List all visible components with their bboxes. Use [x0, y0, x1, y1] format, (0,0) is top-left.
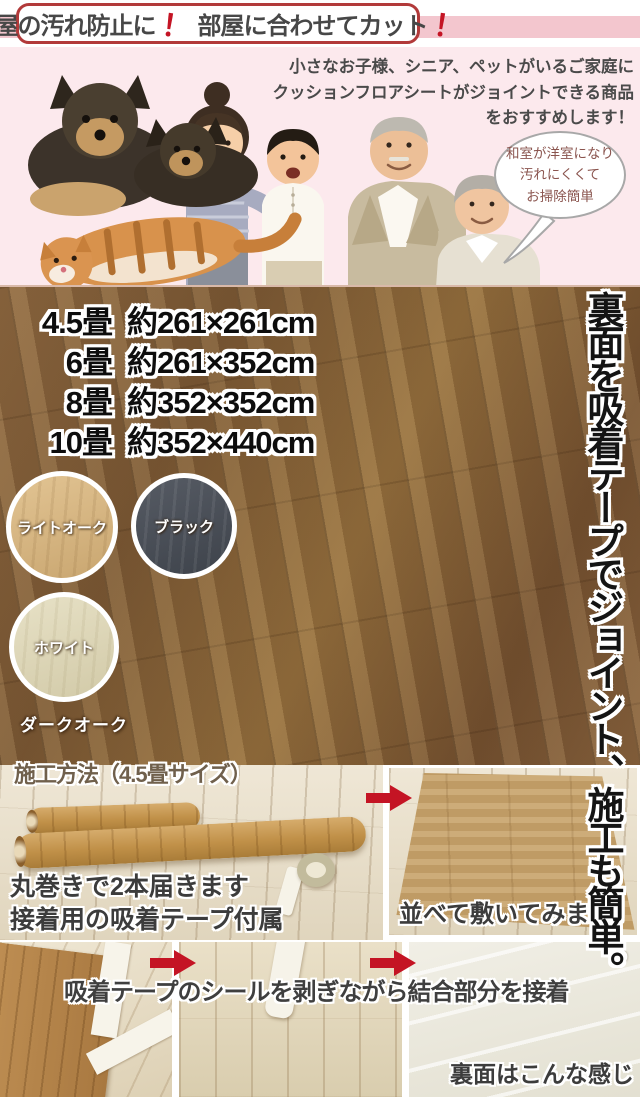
intro-description-line: をおすすめします！: [272, 106, 634, 132]
swatch-white-label: ホワイト: [34, 637, 94, 658]
speech-bubble: 和室が洋室になり 汚れにくくて お掃除簡単: [494, 131, 626, 219]
taping-steps-row: ◎ 裏面はこんな感じ 吸着テープのシールを剥ぎながら結合部分を接着: [0, 942, 640, 1097]
exclamation-icon: ！: [431, 0, 467, 47]
tape-corner-photo: [0, 942, 172, 1097]
size-dimension: 約352×352cm: [127, 377, 314, 422]
intro-description-line: 小さなお子様、シニア、ペットがいるご家庭に: [272, 55, 634, 81]
installation-title: 施工方法（4.5畳サイズ）: [14, 757, 251, 789]
header: 部屋の汚れ防止に ！ 部屋に合わせてカット ！: [0, 0, 640, 47]
swatch-dark-oak-label: ダークオーク: [20, 711, 128, 736]
step4-caption: 裏面はこんな感じ: [450, 1055, 634, 1089]
exclamation-icon: ！: [159, 0, 195, 47]
size-label: 6畳: [6, 337, 112, 382]
size-dimension: 約261×261cm: [127, 297, 314, 342]
swatch-light-oak: ライトオーク: [6, 471, 118, 583]
speech-bubble-tail: [500, 211, 560, 269]
size-label: 8畳: [6, 377, 112, 422]
adhesive-tape-roll: [297, 853, 335, 887]
size-row: 4.5畳 約261×261cm: [6, 297, 314, 337]
size-label: 4.5畳: [6, 297, 112, 342]
speech-bubble-line: 汚れにくくて: [520, 164, 600, 186]
size-dimension: 約352×440cm: [127, 417, 314, 462]
step1-caption: 丸巻きで2本届きます 接着用の吸着テープ付属: [10, 871, 284, 936]
intro-description-line: クッションフロアシートがジョイントできる商品: [272, 81, 634, 107]
header-title-box: 部屋の汚れ防止に ！ 部屋に合わせてカット ！: [16, 3, 420, 44]
size-row: 10畳 約352×440cm: [6, 417, 314, 457]
size-dimension: 約261×352cm: [127, 337, 314, 382]
vertical-banner-text: 裏面を吸着テープでジョイント、施工も簡単。: [562, 291, 634, 1011]
arrow-right-icon: [366, 785, 412, 811]
header-title-left: 部屋の汚れ防止に: [0, 6, 156, 41]
swatch-black-label: ブラック: [154, 516, 214, 537]
swatch-light-oak-label: ライトオーク: [17, 517, 107, 538]
rolled-sheets-photo: 丸巻きで2本届きます 接着用の吸着テープ付属: [0, 765, 383, 940]
speech-bubble-line: 和室が洋室になり: [506, 143, 614, 165]
intro-description: 小さなお子様、シニア、ペットがいるご家庭に クッションフロアシートがジョイントで…: [272, 55, 634, 132]
size-row: 8畳 約352×352cm: [6, 377, 314, 417]
size-row: 6畳 約261×352cm: [6, 337, 314, 377]
size-label: 10畳: [6, 417, 112, 462]
family-photo-section: 小さなお子様、シニア、ペットがいるご家庭に クッションフロアシートがジョイントで…: [0, 47, 640, 287]
swatch-white: ホワイト: [9, 592, 119, 702]
product-promo-page: 部屋の汚れ防止に ！ 部屋に合わせてカット ！: [0, 0, 640, 1097]
tape-peeling-photo: [179, 942, 402, 1097]
installation-section: 施工方法（4.5畳サイズ） 丸巻きで2本届きます 接着用の吸着テープ付属 並べて…: [0, 765, 640, 942]
speech-bubble-line: お掃除簡単: [526, 186, 594, 208]
boy-illustration: [262, 129, 324, 287]
dark-oak-floor-section: 4.5畳 約261×261cm 6畳 約261×352cm 8畳 約352×35…: [0, 287, 640, 765]
header-title-right: 部屋に合わせてカット: [198, 6, 428, 41]
step1-caption-line: 接着用の吸着テープ付属: [10, 904, 284, 937]
size-list: 4.5畳 約261×261cm 6畳 約261×352cm 8畳 約352×35…: [6, 297, 314, 457]
step1-caption-line: 丸巻きで2本届きます: [10, 871, 284, 904]
step3-caption: 吸着テープのシールを剥ぎながら結合部分を接着: [64, 972, 569, 1007]
swatch-black: ブラック: [131, 473, 237, 579]
